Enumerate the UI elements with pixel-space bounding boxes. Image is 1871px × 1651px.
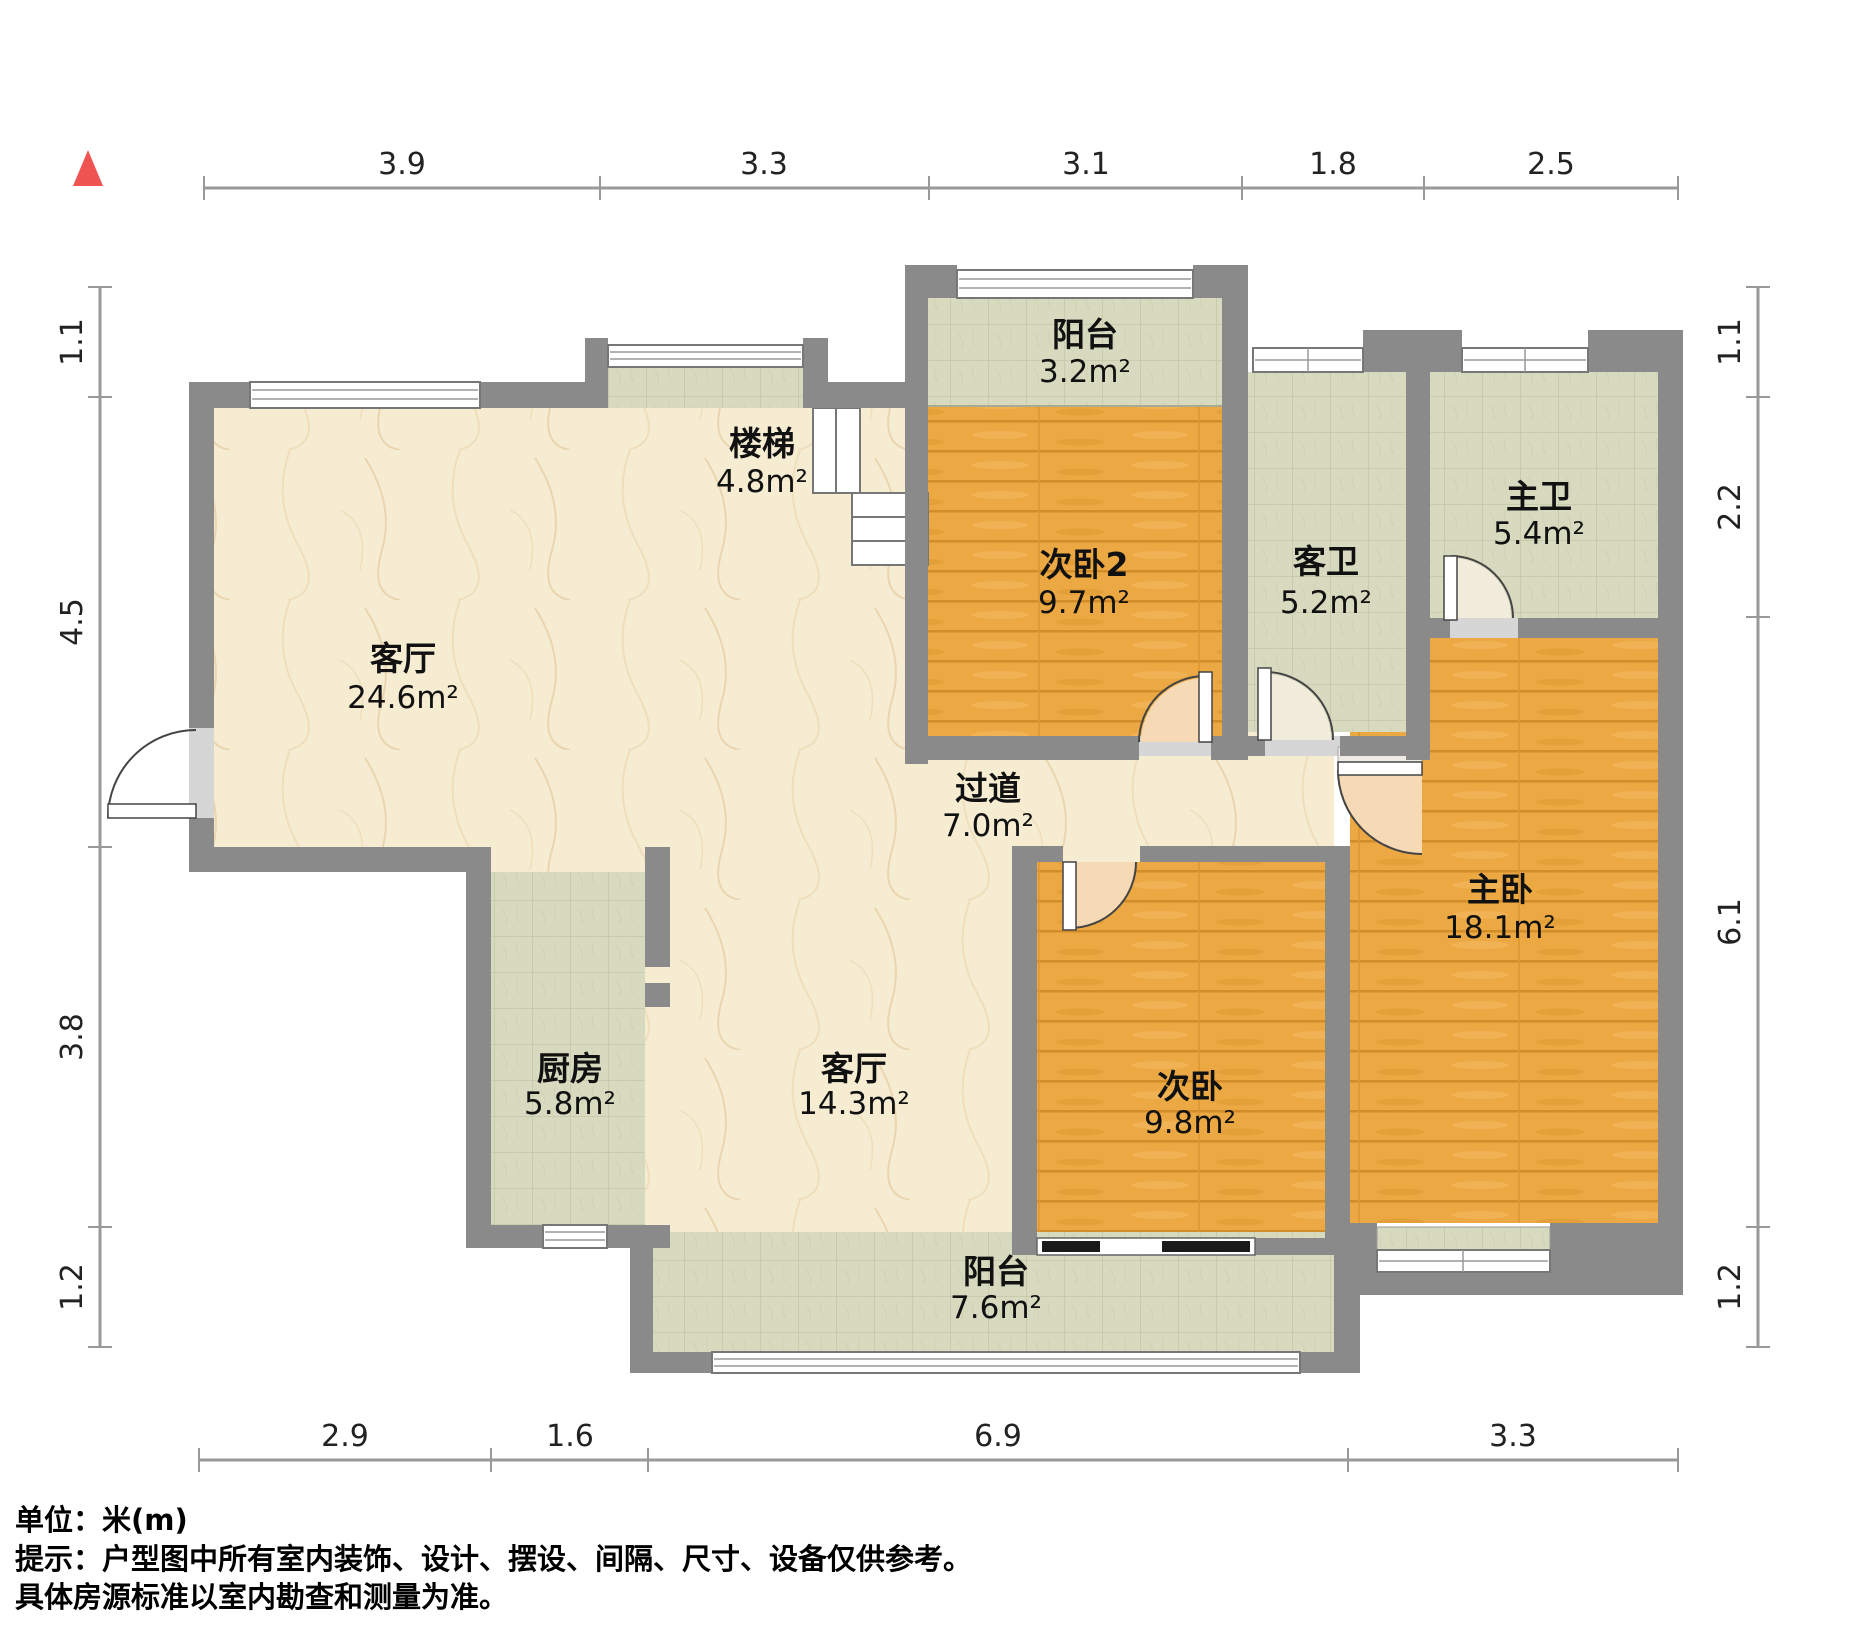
room-name-kitchen: 厨房 <box>537 1049 603 1088</box>
dim-label: 6.1 <box>1713 898 1748 946</box>
guest-bath-window <box>1253 348 1363 372</box>
dim-label: 3.9 <box>378 147 426 182</box>
room-area-bedroom2: 9.7m² <box>1038 585 1130 621</box>
room-area-master-bedroom: 18.1m² <box>1444 910 1556 946</box>
exterior-notch <box>189 872 466 1373</box>
dim-label: 1.1 <box>1713 318 1748 366</box>
room-name-dining: 客厅 <box>821 1049 887 1088</box>
disclaimer-line2: 具体房源标准以室内勘查和测量为准。 <box>15 1580 508 1614</box>
dim-label: 1.6 <box>546 1419 594 1454</box>
bay-window <box>608 345 803 367</box>
room-name-hallway: 过道 <box>955 769 1021 808</box>
balcony-bottom-window <box>712 1352 1300 1373</box>
dim-label: 6.9 <box>974 1419 1022 1454</box>
dim-label: 3.8 <box>55 1013 90 1061</box>
dim-label: 1.2 <box>55 1263 90 1311</box>
dim-label: 3.3 <box>1489 1419 1537 1454</box>
dim-label: 2.2 <box>1713 483 1748 531</box>
room-area-balcony-top: 3.2m² <box>1039 354 1131 390</box>
dim-label: 3.3 <box>740 147 788 182</box>
room-name-master-bedroom: 主卧 <box>1467 870 1533 909</box>
master-bedroom-window <box>1377 1227 1550 1272</box>
living-window <box>250 382 480 408</box>
kitchen-window <box>543 1225 607 1248</box>
balcony-top-window <box>957 270 1193 298</box>
room-name-guest-bath: 客卫 <box>1293 542 1359 581</box>
floor-plan: 3.9 3.3 3.1 1.8 2.5 2.9 1.6 6.9 3.3 1.1 <box>0 0 1871 1651</box>
room-name-living-top: 客厅 <box>370 639 436 678</box>
room-area-living-top: 24.6m² <box>347 680 459 716</box>
room-name-master-bath: 主卫 <box>1506 477 1572 516</box>
footer-notes: 单位：米(m) 提示：户型图中所有室内装饰、设计、摆设、间隔、尺寸、设备仅供参考… <box>15 1503 972 1614</box>
room-name-stairs: 楼梯 <box>729 424 795 463</box>
dim-label: 3.1 <box>1062 147 1110 182</box>
dim-label: 1.8 <box>1309 147 1357 182</box>
dimension-left: 1.1 4.5 3.8 1.2 <box>55 287 112 1347</box>
room-area-kitchen: 5.8m² <box>524 1086 616 1122</box>
room-area-hallway: 7.0m² <box>942 808 1034 844</box>
room-area-guest-bath: 5.2m² <box>1280 585 1372 621</box>
room-name-balcony-bottom: 阳台 <box>963 1252 1029 1291</box>
entry-door <box>108 730 196 818</box>
room-area-bedroom3: 9.8m² <box>1144 1105 1236 1141</box>
room-name-bedroom2: 次卧2 <box>1040 545 1129 584</box>
dim-label: 2.9 <box>321 1419 369 1454</box>
dim-label: 2.5 <box>1527 147 1575 182</box>
master-bath-door-sill <box>1450 618 1518 638</box>
floor-plan-canvas: 3.9 3.3 3.1 1.8 2.5 2.9 1.6 6.9 3.3 1.1 <box>0 0 1871 1651</box>
room-name-bedroom3: 次卧 <box>1157 1067 1223 1106</box>
dim-label: 1.2 <box>1713 1263 1748 1311</box>
dimension-top: 3.9 3.3 3.1 1.8 2.5 <box>204 147 1678 200</box>
kitchen-doorway-floor <box>645 1000 670 1232</box>
unit-note: 单位：米(m) <box>15 1503 188 1537</box>
disclaimer-line1: 提示：户型图中所有室内装饰、设计、摆设、间隔、尺寸、设备仅供参考。 <box>15 1542 972 1576</box>
dim-label: 4.5 <box>55 598 90 646</box>
room-area-stairs: 4.8m² <box>716 464 808 500</box>
dimension-bottom: 2.9 1.6 6.9 3.3 <box>199 1419 1678 1472</box>
bay-window-floor <box>608 367 803 408</box>
master-bath-window <box>1462 348 1588 372</box>
room-area-master-bath: 5.4m² <box>1493 516 1585 552</box>
room-area-dining: 14.3m² <box>798 1086 910 1122</box>
room-area-balcony-bottom: 7.6m² <box>950 1290 1042 1326</box>
dimension-right: 1.1 2.2 6.1 1.2 <box>1713 287 1770 1347</box>
room-name-balcony-top: 阳台 <box>1052 315 1118 354</box>
north-arrow-icon <box>73 150 103 186</box>
dim-label: 1.1 <box>55 318 90 366</box>
bedroom3-window <box>1037 1238 1255 1255</box>
